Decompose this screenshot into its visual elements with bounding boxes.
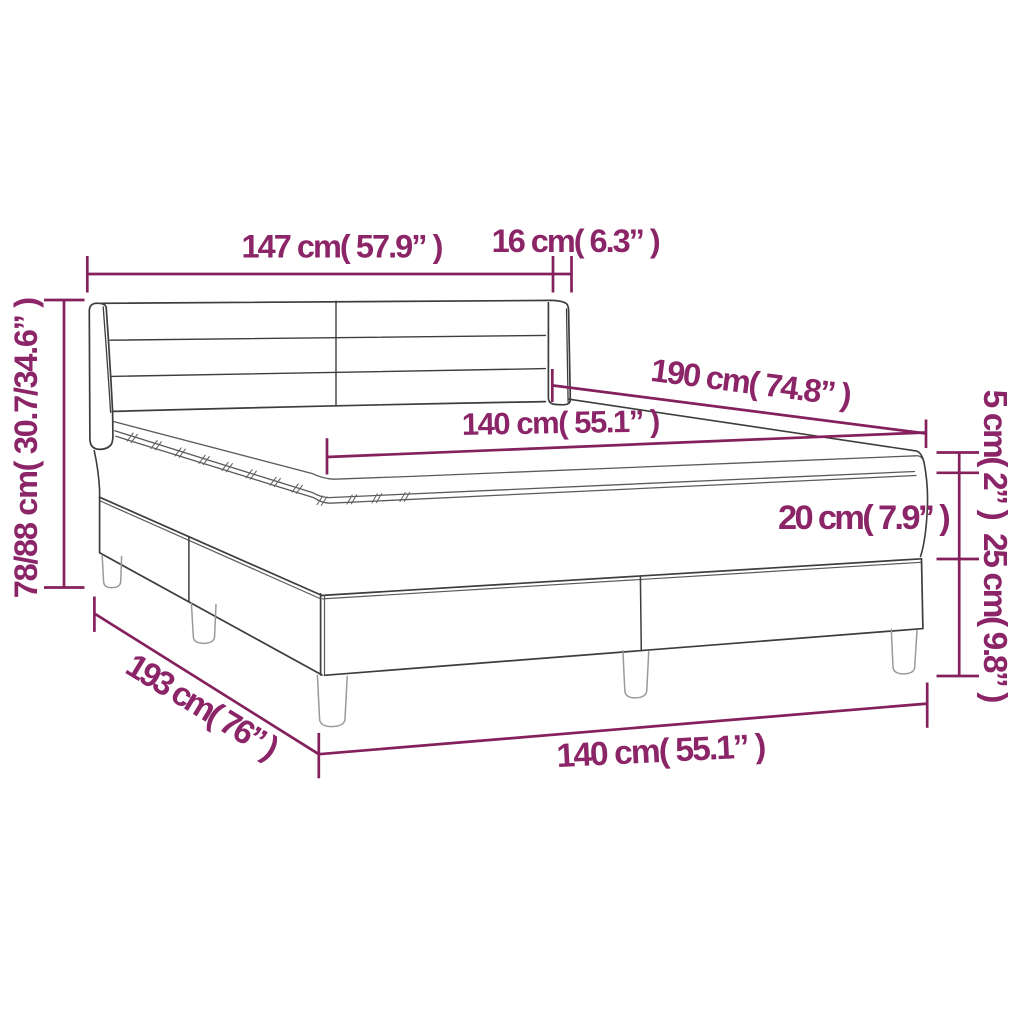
svg-text:147 cm( 57.9” ): 147 cm( 57.9” ) [241,229,442,265]
svg-text:140 cm( 55.1” ): 140 cm( 55.1” ) [461,403,659,441]
svg-text:25 cm( 9.8” ): 25 cm( 9.8” ) [976,533,1013,702]
svg-text:16 cm( 6.3” ): 16 cm( 6.3” ) [492,223,660,259]
svg-text:78/88 cm( 30.7/34.6” ): 78/88 cm( 30.7/34.6” ) [8,298,44,598]
svg-text:5 cm( 2” ): 5 cm( 2” ) [976,390,1013,520]
svg-text:20 cm( 7.9” ): 20 cm( 7.9” ) [778,499,949,537]
